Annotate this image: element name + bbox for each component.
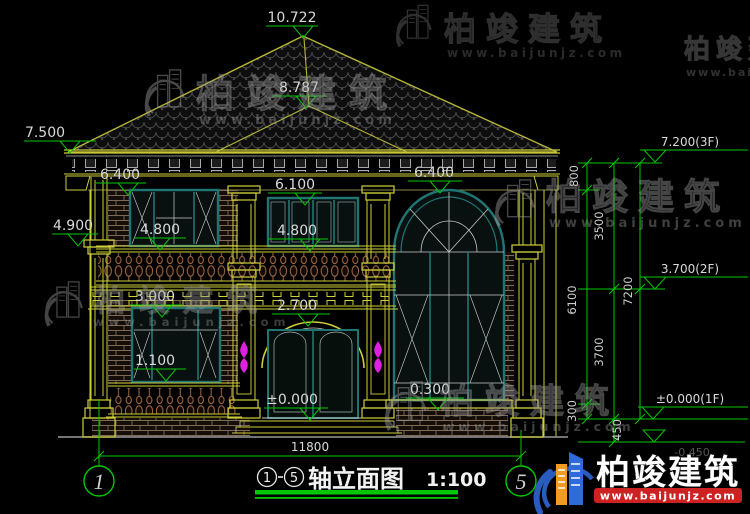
marker-ridge: 10.722 [266,10,318,38]
watermark-logo-icon [46,282,81,326]
drawing-scale: 1:100 [426,469,486,491]
marker-label: 6.100 [275,177,315,193]
balustrade-2f [96,246,396,285]
balustrade-1f [106,383,242,417]
entry-steps [232,421,402,433]
marker-label: 6.400 [414,165,454,181]
watermark-site: www.baijunjz.com [93,315,290,329]
title-axis-to: 5 [290,471,298,486]
level-2f: 3.700(2F) [661,262,719,276]
watermark: 柏竣建筑 www.baijunjz.com [398,5,626,60]
dim-7200: 7200 [621,276,635,305]
marker-label: 2.700 [277,298,317,314]
watermark: 柏竣建筑 www.baijunjz.com [684,34,750,79]
title-underline [255,490,458,495]
marker-label: 7.500 [25,125,65,141]
arch-window [386,190,512,408]
marker-label: 1.100 [135,353,175,369]
watermark-site: www.baijunjz.com [686,66,750,79]
dim-3700: 3700 [592,337,606,366]
elevation-drawing: 10.722 8.787 7.500 6.400 4.900 6.100 4.8… [0,0,750,514]
marker-label: ±0.000 [266,392,318,408]
watermark-brand: 柏竣建筑 [546,177,730,218]
watermark: 柏竣建筑 www.baijunjz.com [497,177,746,231]
brand-site: www.baijunjz.com [600,490,736,503]
brick-quoin [504,252,514,402]
brand-logo-icon [537,452,592,512]
title-axis-from: 1 [263,471,271,486]
brand-logo: 柏竣建筑 www.baijunjz.com [537,452,742,512]
axis-number-1: 1 [94,469,105,494]
watermark-brand: 柏竣建筑 [196,72,400,116]
brand-name: 柏竣建筑 [596,453,740,493]
watermark-brand: 柏竣建筑 [440,382,620,422]
cad-elevation-screenshot: 10.722 8.787 7.500 6.400 4.900 6.100 4.8… [0,0,750,514]
title-block: 1 5 轴立面图 1:100 [255,465,486,499]
drawing-title: 轴立面图 [308,465,404,493]
marker-label: 4.900 [53,218,93,234]
watermark-logo-icon [497,180,534,226]
watermark-site: www.baijunjz.com [199,113,396,128]
watermark-brand: 柏竣建筑 [95,284,271,319]
watermark-brand: 柏竣建筑 [444,10,612,48]
level-1f: ±0.000(1F) [656,392,724,406]
watermark-site: www.baijunjz.com [447,46,626,60]
watermark-logo-icon [398,5,431,46]
marker-label: 6.400 [100,167,140,183]
dentil-row [72,159,556,172]
total-width-dim: 11800 [291,440,329,454]
watermark-site: www.baijunjz.com [443,419,635,434]
marker-label: 10.722 [268,10,317,26]
marker-arch-top: 6.400 [408,165,462,193]
marker-left-capital: 4.900 [52,218,98,246]
level-3f: 7.200(3F) [661,135,719,149]
marker-label: 4.800 [277,223,317,239]
watermark-brand: 柏竣建筑 [684,34,750,65]
marker-label: 4.800 [140,222,180,238]
watermark: 柏竣建筑 www.baijunjz.com [46,282,290,329]
watermark-site: www.baijunjz.com [549,216,746,231]
axis-number-5: 5 [516,469,527,494]
dim-6100: 6100 [565,285,579,314]
